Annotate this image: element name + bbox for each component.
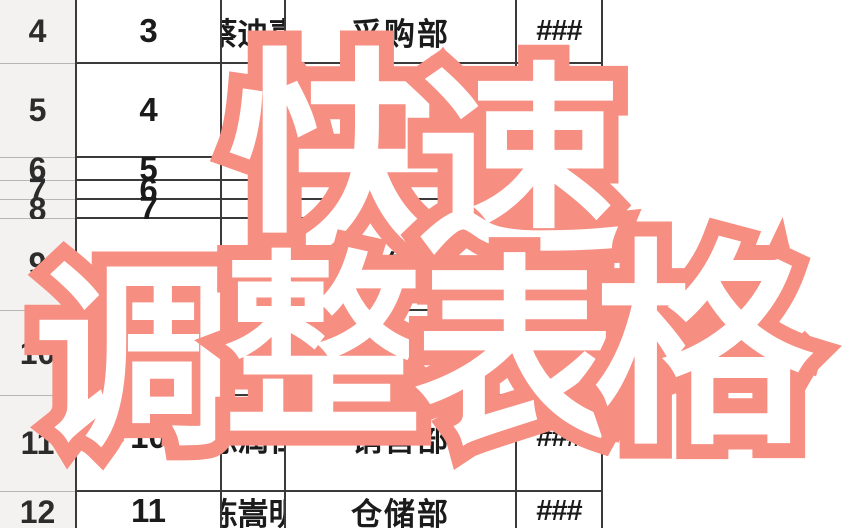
cell-dept-row6[interactable] [286, 158, 517, 181]
cell-name-row5[interactable] [222, 64, 286, 158]
cell-name-row12[interactable]: 陈嵩明 [222, 492, 286, 528]
cell-value-row9[interactable]: ### [517, 219, 603, 311]
cell-dept-row9[interactable]: 销售部 [286, 219, 517, 311]
row-header-5[interactable]: 5 [0, 64, 75, 158]
caption-char-outline: 格 [594, 240, 812, 458]
row-header-12[interactable]: 12 [0, 492, 75, 528]
cell-name-row7[interactable] [222, 181, 286, 200]
row-header-9[interactable]: 9 [0, 219, 75, 311]
cell-value-row10[interactable] [517, 311, 603, 396]
cell-seq-row10[interactable] [75, 311, 222, 396]
cell-dept-row4[interactable]: 采购部 [286, 0, 517, 64]
caption-char-fill: 格 [594, 227, 812, 470]
cell-seq-row8[interactable]: 7 [75, 200, 222, 219]
row-header-8[interactable]: 8 [0, 200, 75, 219]
cell-dept-row7[interactable] [286, 181, 517, 200]
cell-name-row10[interactable] [222, 311, 286, 396]
caption-char-ge: 格 格 [594, 240, 812, 458]
cell-seq-row11[interactable]: 10 [75, 396, 222, 492]
row-header-4[interactable]: 4 [0, 0, 75, 64]
cell-seq-row9[interactable]: 8 [75, 219, 222, 311]
cell-dept-row11[interactable]: 销售部 [286, 396, 517, 492]
cell-name-row6[interactable] [222, 158, 286, 181]
cell-name-row8[interactable] [222, 200, 286, 219]
cell-dept-row12[interactable]: 仓储部 [286, 492, 517, 528]
cell-value-row5[interactable] [517, 64, 603, 158]
cell-value-row6[interactable] [517, 158, 603, 181]
cell-name-row11[interactable]: 陈润仁 [222, 396, 286, 492]
cell-value-row12[interactable]: ### [517, 492, 603, 528]
worksheet-grid: 4 3 蔡迪嘉 采购部 ### 5 4 6 5 7 6 8 7 9 8 销售部 … [0, 0, 603, 528]
cell-dept-row8[interactable] [286, 200, 517, 219]
cell-value-row11[interactable]: ### [517, 396, 603, 492]
cell-seq-row4[interactable]: 3 [75, 0, 222, 64]
cell-dept-row5[interactable] [286, 64, 517, 158]
cell-name-row9[interactable] [222, 219, 286, 311]
row-header-10[interactable]: 10 [0, 311, 75, 396]
cell-seq-row12[interactable]: 11 [75, 492, 222, 528]
spreadsheet-screenshot: 4 3 蔡迪嘉 采购部 ### 5 4 6 5 7 6 8 7 9 8 销售部 … [0, 0, 846, 528]
cell-value-row4[interactable]: ### [517, 0, 603, 64]
cell-value-row7[interactable] [517, 181, 603, 200]
cell-value-row8[interactable] [517, 200, 603, 219]
cell-name-row4[interactable]: 蔡迪嘉 [222, 0, 286, 64]
cell-seq-row5[interactable]: 4 [75, 64, 222, 158]
cell-dept-row10[interactable] [286, 311, 517, 396]
row-header-11[interactable]: 11 [0, 396, 75, 492]
